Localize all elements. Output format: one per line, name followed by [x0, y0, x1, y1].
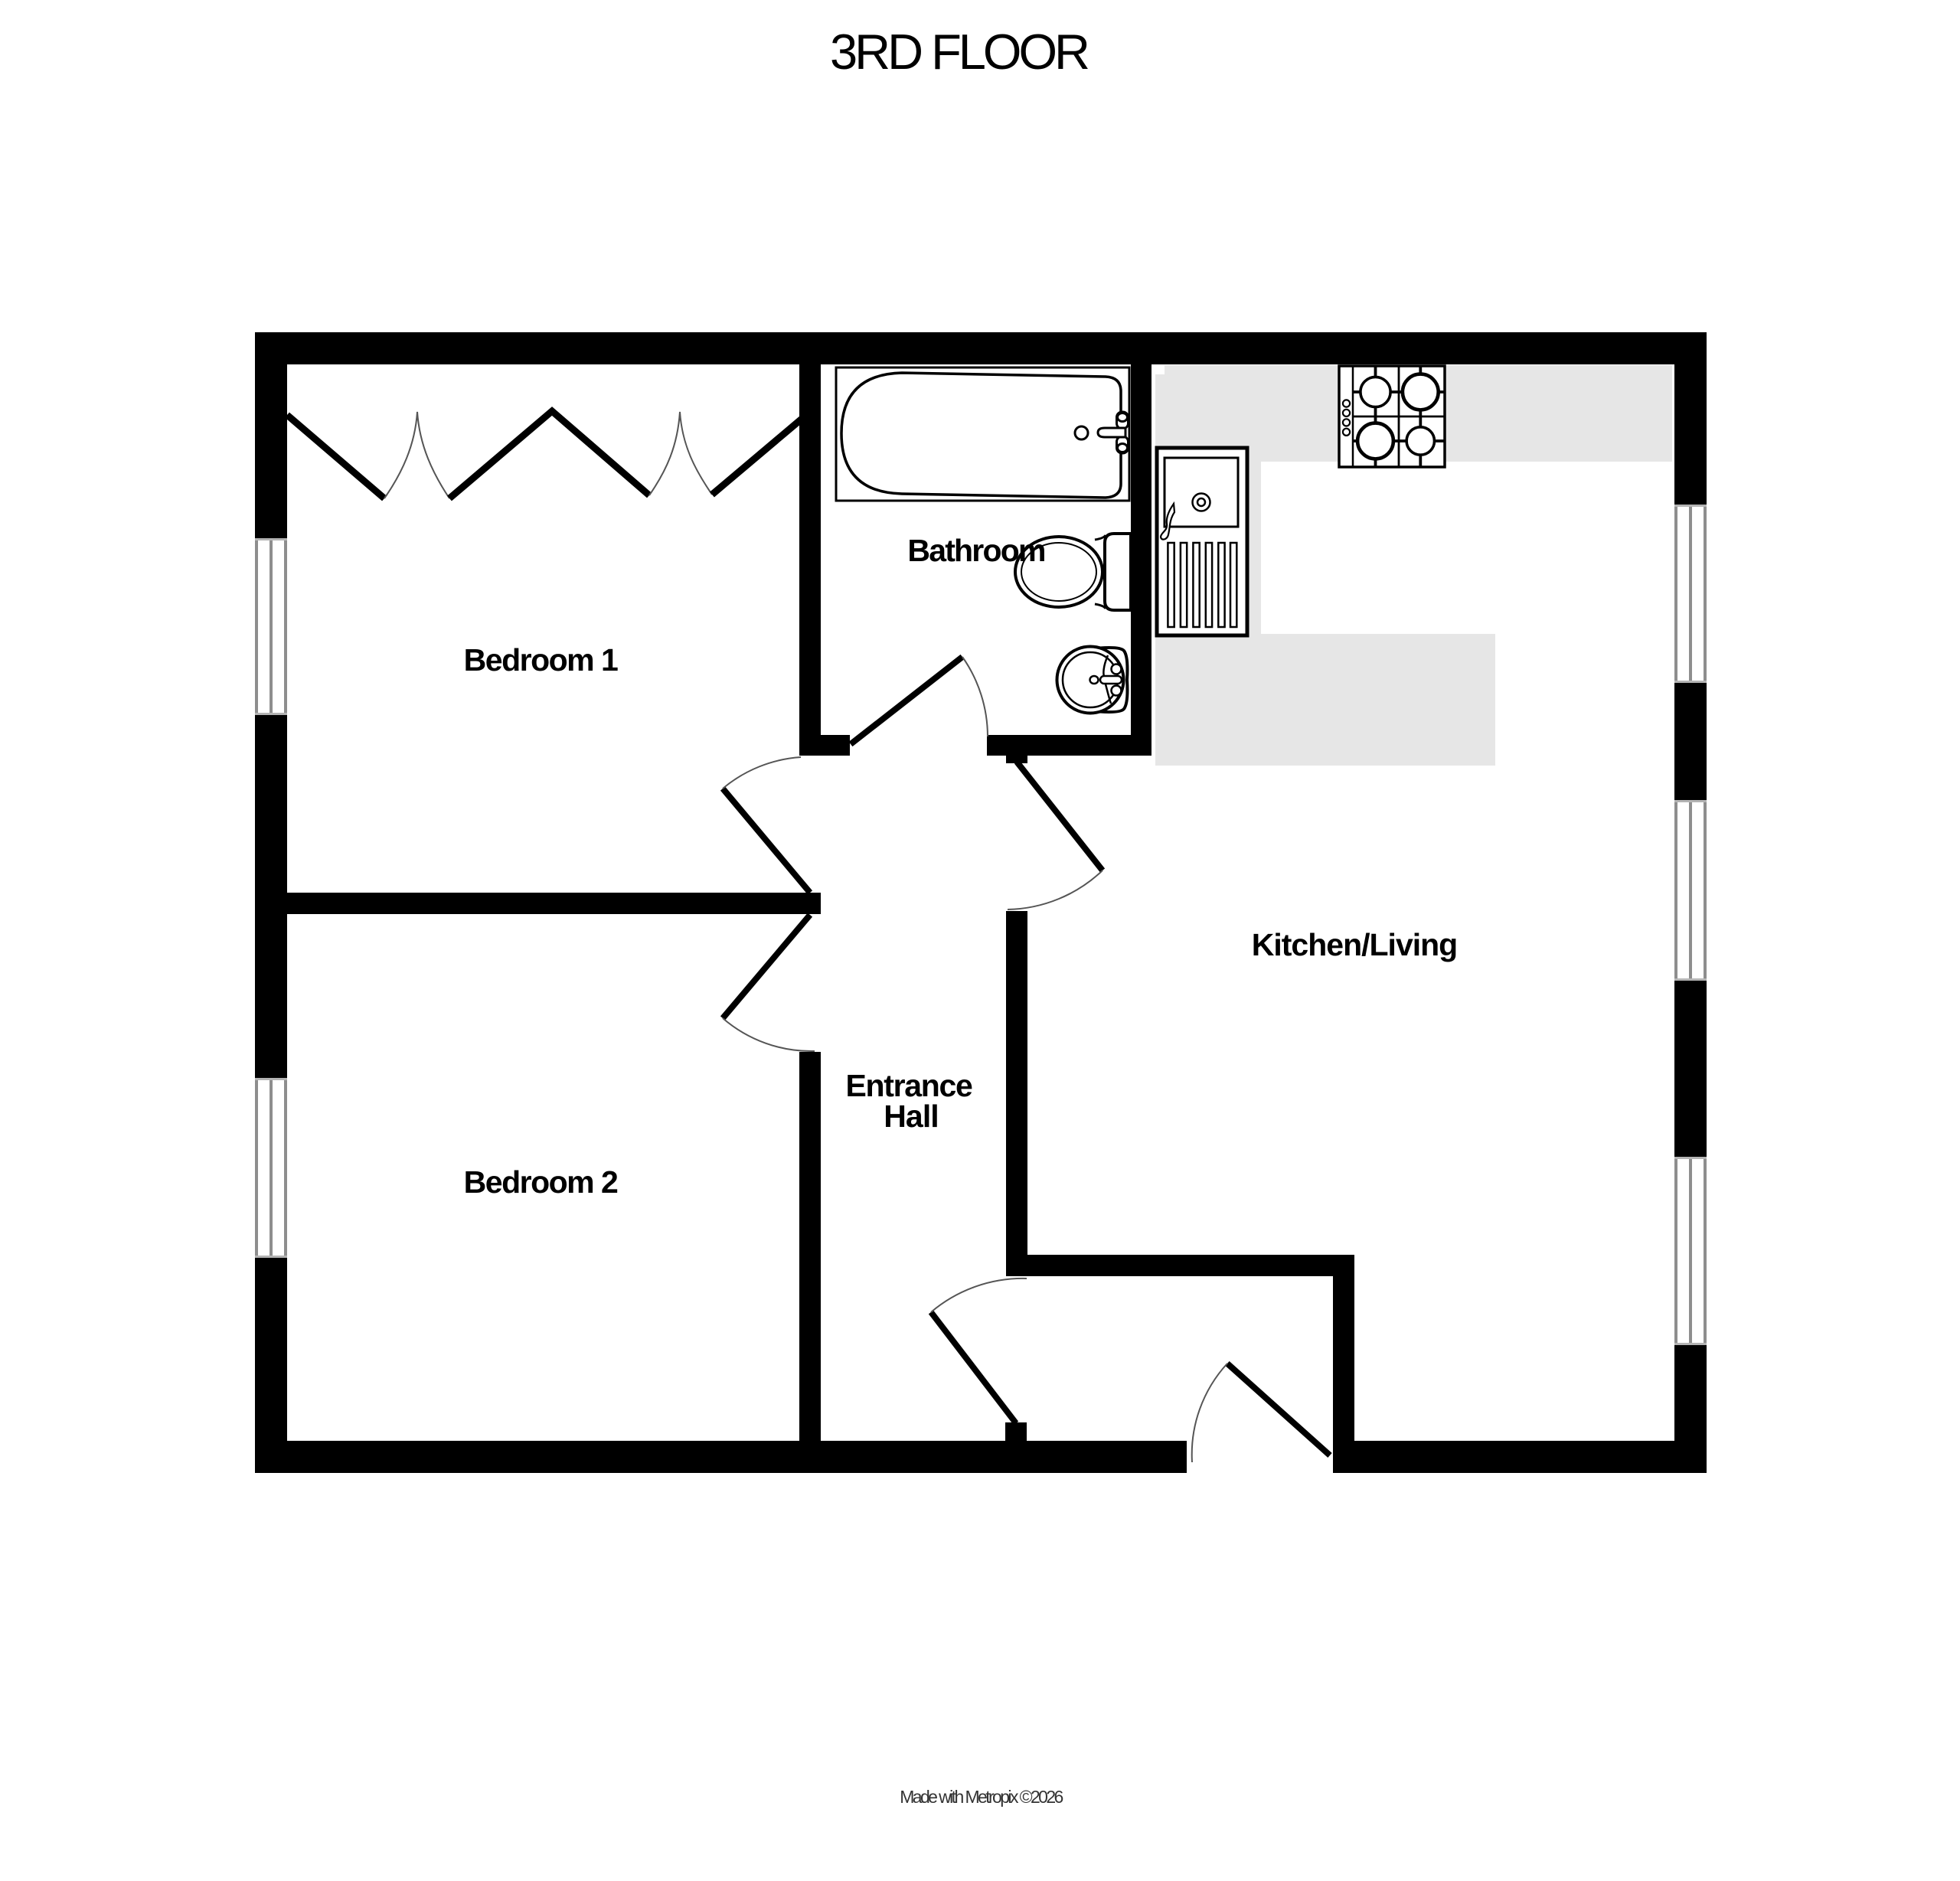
svg-text:Bedroom 1: Bedroom 1 — [464, 642, 618, 678]
svg-text:Hall: Hall — [884, 1099, 939, 1134]
svg-text:Bedroom 2: Bedroom 2 — [464, 1164, 618, 1200]
svg-text:Made with Metropix ©2026: Made with Metropix ©2026 — [900, 1787, 1063, 1807]
svg-text:Bathroom: Bathroom — [907, 533, 1044, 568]
svg-text:3RD FLOOR: 3RD FLOOR — [830, 24, 1088, 80]
svg-text:Kitchen/Living: Kitchen/Living — [1252, 927, 1457, 962]
